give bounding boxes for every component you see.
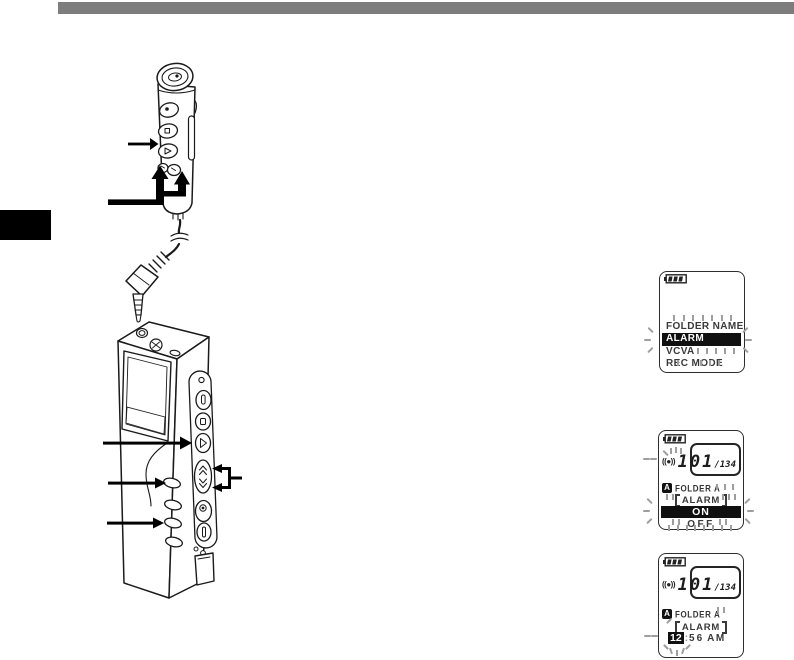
folder-name-label: FOLDER A: [675, 483, 720, 493]
folder-row: A FOLDER A: [662, 483, 720, 493]
lcd-alarm-time-screen: 101 /134 ((●)) A FOLDER A ALARM 12 : 56 …: [658, 553, 744, 658]
file-total: /134: [714, 583, 736, 593]
option-on-selected: ON: [661, 506, 741, 518]
blink-tick: [663, 644, 669, 650]
recorder-illustration: [118, 322, 217, 598]
blink-tick: [734, 494, 736, 500]
file-number-box: 101 /134: [690, 443, 741, 476]
alarm-minutes: 56: [689, 633, 704, 644]
folder-name-label: FOLDER A: [675, 609, 720, 619]
manual-page: FOLDER NAME ALARM VCVA REC MODE: [0, 0, 794, 660]
remote-play-button-arrow: [128, 138, 159, 150]
alarm-time-row: 12 : 56 AM: [668, 632, 726, 644]
blink-tick: [662, 450, 669, 457]
recorder-ff-rew-buttons-bracket: [212, 464, 242, 492]
blink-tick: [723, 607, 725, 613]
alarm-speaker-icon: ((●)): [662, 580, 675, 589]
blink-tick: [728, 494, 730, 500]
plug-illustration: [126, 252, 169, 322]
lcd-menu-screen: FOLDER NAME ALARM VCVA REC MODE: [659, 271, 745, 373]
chapter-tab: [0, 210, 51, 240]
battery-icon: [663, 434, 686, 444]
alarm-speaker-icon: ((●)): [662, 457, 675, 466]
setting-title-text: ALARM: [682, 495, 720, 506]
blink-tick: [676, 650, 678, 656]
battery-icon: [663, 557, 686, 567]
blink-tick: [670, 448, 672, 454]
alarm-am-pm: AM: [707, 633, 726, 644]
battery-icon: [664, 274, 687, 284]
blink-ticks: [668, 525, 732, 531]
blink-tick: [717, 607, 719, 613]
blink-ticks: [700, 360, 720, 366]
lcd-alarm-on-off-screen: 101 /134 ((●)) A FOLDER A ALARM ON OFF: [658, 430, 744, 530]
connection-cord: [166, 220, 188, 257]
header-rule: [58, 2, 794, 14]
file-number-box: 101 /134: [690, 566, 741, 599]
blink-tick: [669, 648, 673, 654]
blink-tick: [666, 494, 668, 500]
blink-ticks: [716, 484, 734, 490]
blink-ticks: [697, 348, 735, 354]
alarm-hour-flashing: 12: [668, 632, 684, 644]
file-number: 101: [678, 452, 715, 472]
menu-item-alarm-selected: ALARM: [662, 333, 741, 345]
blink-tick: [685, 644, 691, 650]
folder-row: A FOLDER A: [662, 609, 720, 619]
menu-item-folder-name: FOLDER NAME: [662, 321, 741, 333]
time-separator: :: [685, 633, 688, 644]
blink-ticks: [677, 360, 679, 366]
folder-a-icon: A: [662, 483, 672, 493]
file-total: /134: [714, 460, 736, 470]
file-number: 101: [678, 575, 715, 595]
blink-tick: [681, 648, 685, 654]
blink-tick: [672, 494, 674, 500]
device-illustration: [85, 50, 255, 625]
blink-tick: [722, 494, 724, 500]
